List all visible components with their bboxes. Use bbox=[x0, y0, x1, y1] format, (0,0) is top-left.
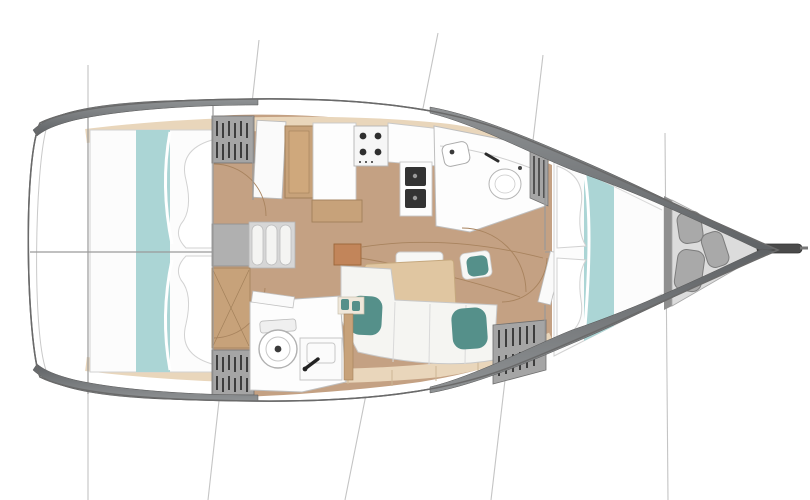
head-drain bbox=[518, 166, 522, 170]
galley-counter-left bbox=[313, 123, 356, 200]
wc-sink-unit bbox=[300, 338, 342, 380]
head-sink-bowl bbox=[489, 169, 521, 199]
floor-plan-svg bbox=[0, 0, 810, 500]
rig-line-5 bbox=[665, 133, 668, 500]
storage-box bbox=[212, 224, 250, 266]
sofa-cushion-right bbox=[451, 307, 489, 350]
aft-bathroom bbox=[250, 291, 364, 392]
toiletries-2 bbox=[352, 301, 360, 311]
boat-floor-plan bbox=[0, 0, 810, 500]
toiletries-1 bbox=[341, 299, 349, 310]
fridge-inner bbox=[289, 131, 309, 193]
curved-seat-slats bbox=[252, 225, 291, 265]
side-seat-cushion bbox=[466, 255, 490, 278]
stove bbox=[354, 126, 388, 166]
wc-side-wood bbox=[344, 314, 353, 380]
galley-shelf bbox=[312, 200, 362, 222]
head-toilet-mark bbox=[450, 150, 455, 155]
galley-door-leaf bbox=[253, 120, 286, 198]
toilet-drain bbox=[275, 346, 282, 353]
salon-stool bbox=[334, 244, 361, 265]
wc-faucet-base bbox=[303, 367, 308, 372]
aft-cabin-berths bbox=[90, 130, 213, 372]
